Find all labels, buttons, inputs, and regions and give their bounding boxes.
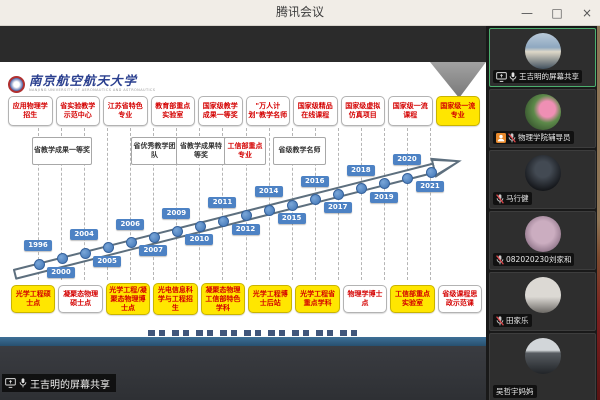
window-titlebar: 腾讯会议 — □ × xyxy=(0,0,600,26)
slide-bottom-bar xyxy=(0,337,486,346)
participant-name: 王吉明的屏幕共享 xyxy=(519,71,579,82)
participant-name: 田家乐 xyxy=(506,315,529,326)
participant-label: 吴哲宇妈妈 xyxy=(493,385,537,398)
timeline-year-label: 2009 xyxy=(162,208,190,219)
screen-share-icon xyxy=(5,378,16,388)
university-logo: 南京航空航天大学 NANJING UNIVERSITY OF AERONAUTI… xyxy=(8,74,155,93)
participant-tile[interactable]: 王吉明的屏幕共享 xyxy=(489,28,596,87)
timeline-guide-line xyxy=(361,128,362,280)
mic-muted-icon xyxy=(496,316,504,326)
screen-share-badge: 王吉明的屏幕共享 xyxy=(2,374,116,392)
participant-label: 物理学院辅导员 xyxy=(493,131,574,144)
participant-name: 082020230刘家和 xyxy=(506,254,571,265)
university-emblem-icon xyxy=(8,76,25,93)
achievement-box-mid: 省教学成果一等奖 xyxy=(32,137,92,165)
participant-avatar xyxy=(525,155,561,191)
participant-tile[interactable]: 082020230刘家和 xyxy=(489,211,596,270)
participant-tile[interactable]: 物理学院辅导员 xyxy=(489,89,596,148)
timeline-year-label: 2000 xyxy=(47,267,75,278)
mic-muted-icon xyxy=(496,255,504,265)
achievement-box-top: "万人计划"教学名师 xyxy=(246,96,291,126)
achievement-box-mid: 工信部重点专业 xyxy=(224,137,266,165)
timeline-year-label: 2006 xyxy=(116,219,144,230)
minimize-button[interactable]: — xyxy=(520,6,534,20)
university-name-english: NANJING UNIVERSITY OF AERONAUTICS AND AS… xyxy=(29,88,155,92)
participants-sidebar: 王吉明的屏幕共享物理学院辅导员马行健082020230刘家和田家乐吴哲宇妈妈 xyxy=(486,25,597,400)
timeline-dot xyxy=(426,167,437,178)
timeline-year-label: 2018 xyxy=(347,165,375,176)
timeline-year-label: 2011 xyxy=(208,197,236,208)
timeline-dot xyxy=(287,200,298,211)
timeline-year-label: 2012 xyxy=(232,224,260,235)
achievement-box-bottom: 省级课程思政示范课 xyxy=(438,285,482,313)
mic-on-icon xyxy=(509,72,517,82)
timeline-year-label: 2017 xyxy=(324,202,352,213)
close-button[interactable]: × xyxy=(580,6,594,20)
timeline-dot xyxy=(149,232,160,243)
timeline-year-label: 1996 xyxy=(24,240,52,251)
timeline-year-label: 2016 xyxy=(301,176,329,187)
timeline-year-label: 2020 xyxy=(393,154,421,165)
participant-avatar xyxy=(525,216,561,252)
screen-share-badge-label: 王吉明的屏幕共享 xyxy=(30,376,110,391)
participant-label: 马行健 xyxy=(493,192,532,205)
participant-tile[interactable]: 田家乐 xyxy=(489,272,596,331)
achievement-box-top: 教育部重点实验室 xyxy=(151,96,196,126)
achievement-box-top: 江苏省特色专业 xyxy=(103,96,148,126)
participant-label: 田家乐 xyxy=(493,314,532,327)
timeline-dot xyxy=(264,205,275,216)
participant-avatar xyxy=(525,94,561,130)
achievement-box-mid: 省教学成果特等奖 xyxy=(176,137,226,165)
participant-label: 王吉明的屏幕共享 xyxy=(493,70,582,83)
participant-tile[interactable]: 马行健 xyxy=(489,150,596,209)
achievement-box-top: 国家级一流课程 xyxy=(388,96,433,126)
timeline-year-label: 2005 xyxy=(93,256,121,267)
timeline-guide-line xyxy=(407,128,408,280)
timeline-dot xyxy=(80,248,91,259)
achievement-box-top: 省实验教学示范中心 xyxy=(56,96,101,126)
participant-name: 吴哲宇妈妈 xyxy=(496,386,534,397)
timeline-year-label: 2010 xyxy=(185,234,213,245)
bottom-achievements-row: 光学工程硕士点凝聚态物理硕士点光学工程/凝聚态物理博士点光电信息科学与工程招生凝… xyxy=(11,283,482,315)
presentation-slide: 南京航空航天大学 NANJING UNIVERSITY OF AERONAUTI… xyxy=(0,62,486,337)
achievement-box-bottom: 光电信息科学与工程招生 xyxy=(153,283,197,315)
timeline-year-label: 2019 xyxy=(370,192,398,203)
slide-corner-decoration xyxy=(430,62,486,98)
achievement-box-top: 国家级精品在线课程 xyxy=(293,96,338,126)
participant-avatar xyxy=(525,338,561,374)
timeline-year-label: 2015 xyxy=(278,213,306,224)
timeline-dot xyxy=(195,221,206,232)
achievement-box-bottom: 凝聚态物理硕士点 xyxy=(58,285,102,313)
top-achievements-row: 应用物理学招生省实验教学示范中心江苏省特色专业教育部重点实验室国家级教学成果一等… xyxy=(8,96,480,126)
timeline-dot xyxy=(57,253,68,264)
participant-name: 物理学院辅导员 xyxy=(518,132,571,143)
participant-tile[interactable]: 吴哲宇妈妈 xyxy=(489,333,596,400)
maximize-button[interactable]: □ xyxy=(550,6,564,20)
participant-avatar xyxy=(525,33,561,69)
participant-avatar xyxy=(525,277,561,313)
achievement-box-mid: 省级教学名师 xyxy=(273,137,326,165)
person-badge-icon xyxy=(496,133,506,143)
screen-share-icon xyxy=(496,72,507,82)
participant-label: 082020230刘家和 xyxy=(493,253,574,266)
achievement-box-bottom: 光学工程博士后站 xyxy=(248,285,292,313)
achievement-box-bottom: 光学工程/凝聚态物理博士点 xyxy=(106,283,150,315)
achievement-box-mid: 省优秀教学团队 xyxy=(131,137,178,165)
achievement-box-top: 国家级一流专业 xyxy=(436,96,481,126)
participant-name: 马行健 xyxy=(506,193,529,204)
mic-muted-icon xyxy=(508,133,516,143)
mic-icon xyxy=(19,378,27,388)
timeline-year-label: 2004 xyxy=(70,229,98,240)
mic-muted-icon xyxy=(496,194,504,204)
achievement-box-top: 国家级教学成果一等奖 xyxy=(198,96,243,126)
achievement-box-bottom: 工信部重点实验室 xyxy=(390,285,434,313)
achievement-box-top: 应用物理学招生 xyxy=(8,96,53,126)
timeline-dot xyxy=(218,216,229,227)
timeline-dot xyxy=(126,237,137,248)
window-controls: — □ × xyxy=(520,0,594,25)
timeline-guide-line xyxy=(384,128,385,280)
achievement-box-bottom: 光学工程省重点学科 xyxy=(295,285,339,313)
achievement-box-bottom: 凝聚态物理工信部特色学科 xyxy=(201,283,245,315)
timeline-year-label: 2014 xyxy=(255,186,283,197)
achievement-box-bottom: 光学工程硕士点 xyxy=(11,285,55,313)
window-title: 腾讯会议 xyxy=(0,0,600,25)
timeline-year-label: 2007 xyxy=(139,245,167,256)
timeline-guide-line xyxy=(430,128,431,280)
clipped-slide-title xyxy=(148,330,360,336)
timeline-year-label: 2021 xyxy=(416,181,444,192)
achievement-box-bottom: 物理学博士点 xyxy=(343,285,387,313)
university-name: 南京航空航天大学 xyxy=(29,74,155,88)
achievement-box-top: 国家级虚拟仿真项目 xyxy=(341,96,386,126)
timeline-dot xyxy=(34,259,45,270)
